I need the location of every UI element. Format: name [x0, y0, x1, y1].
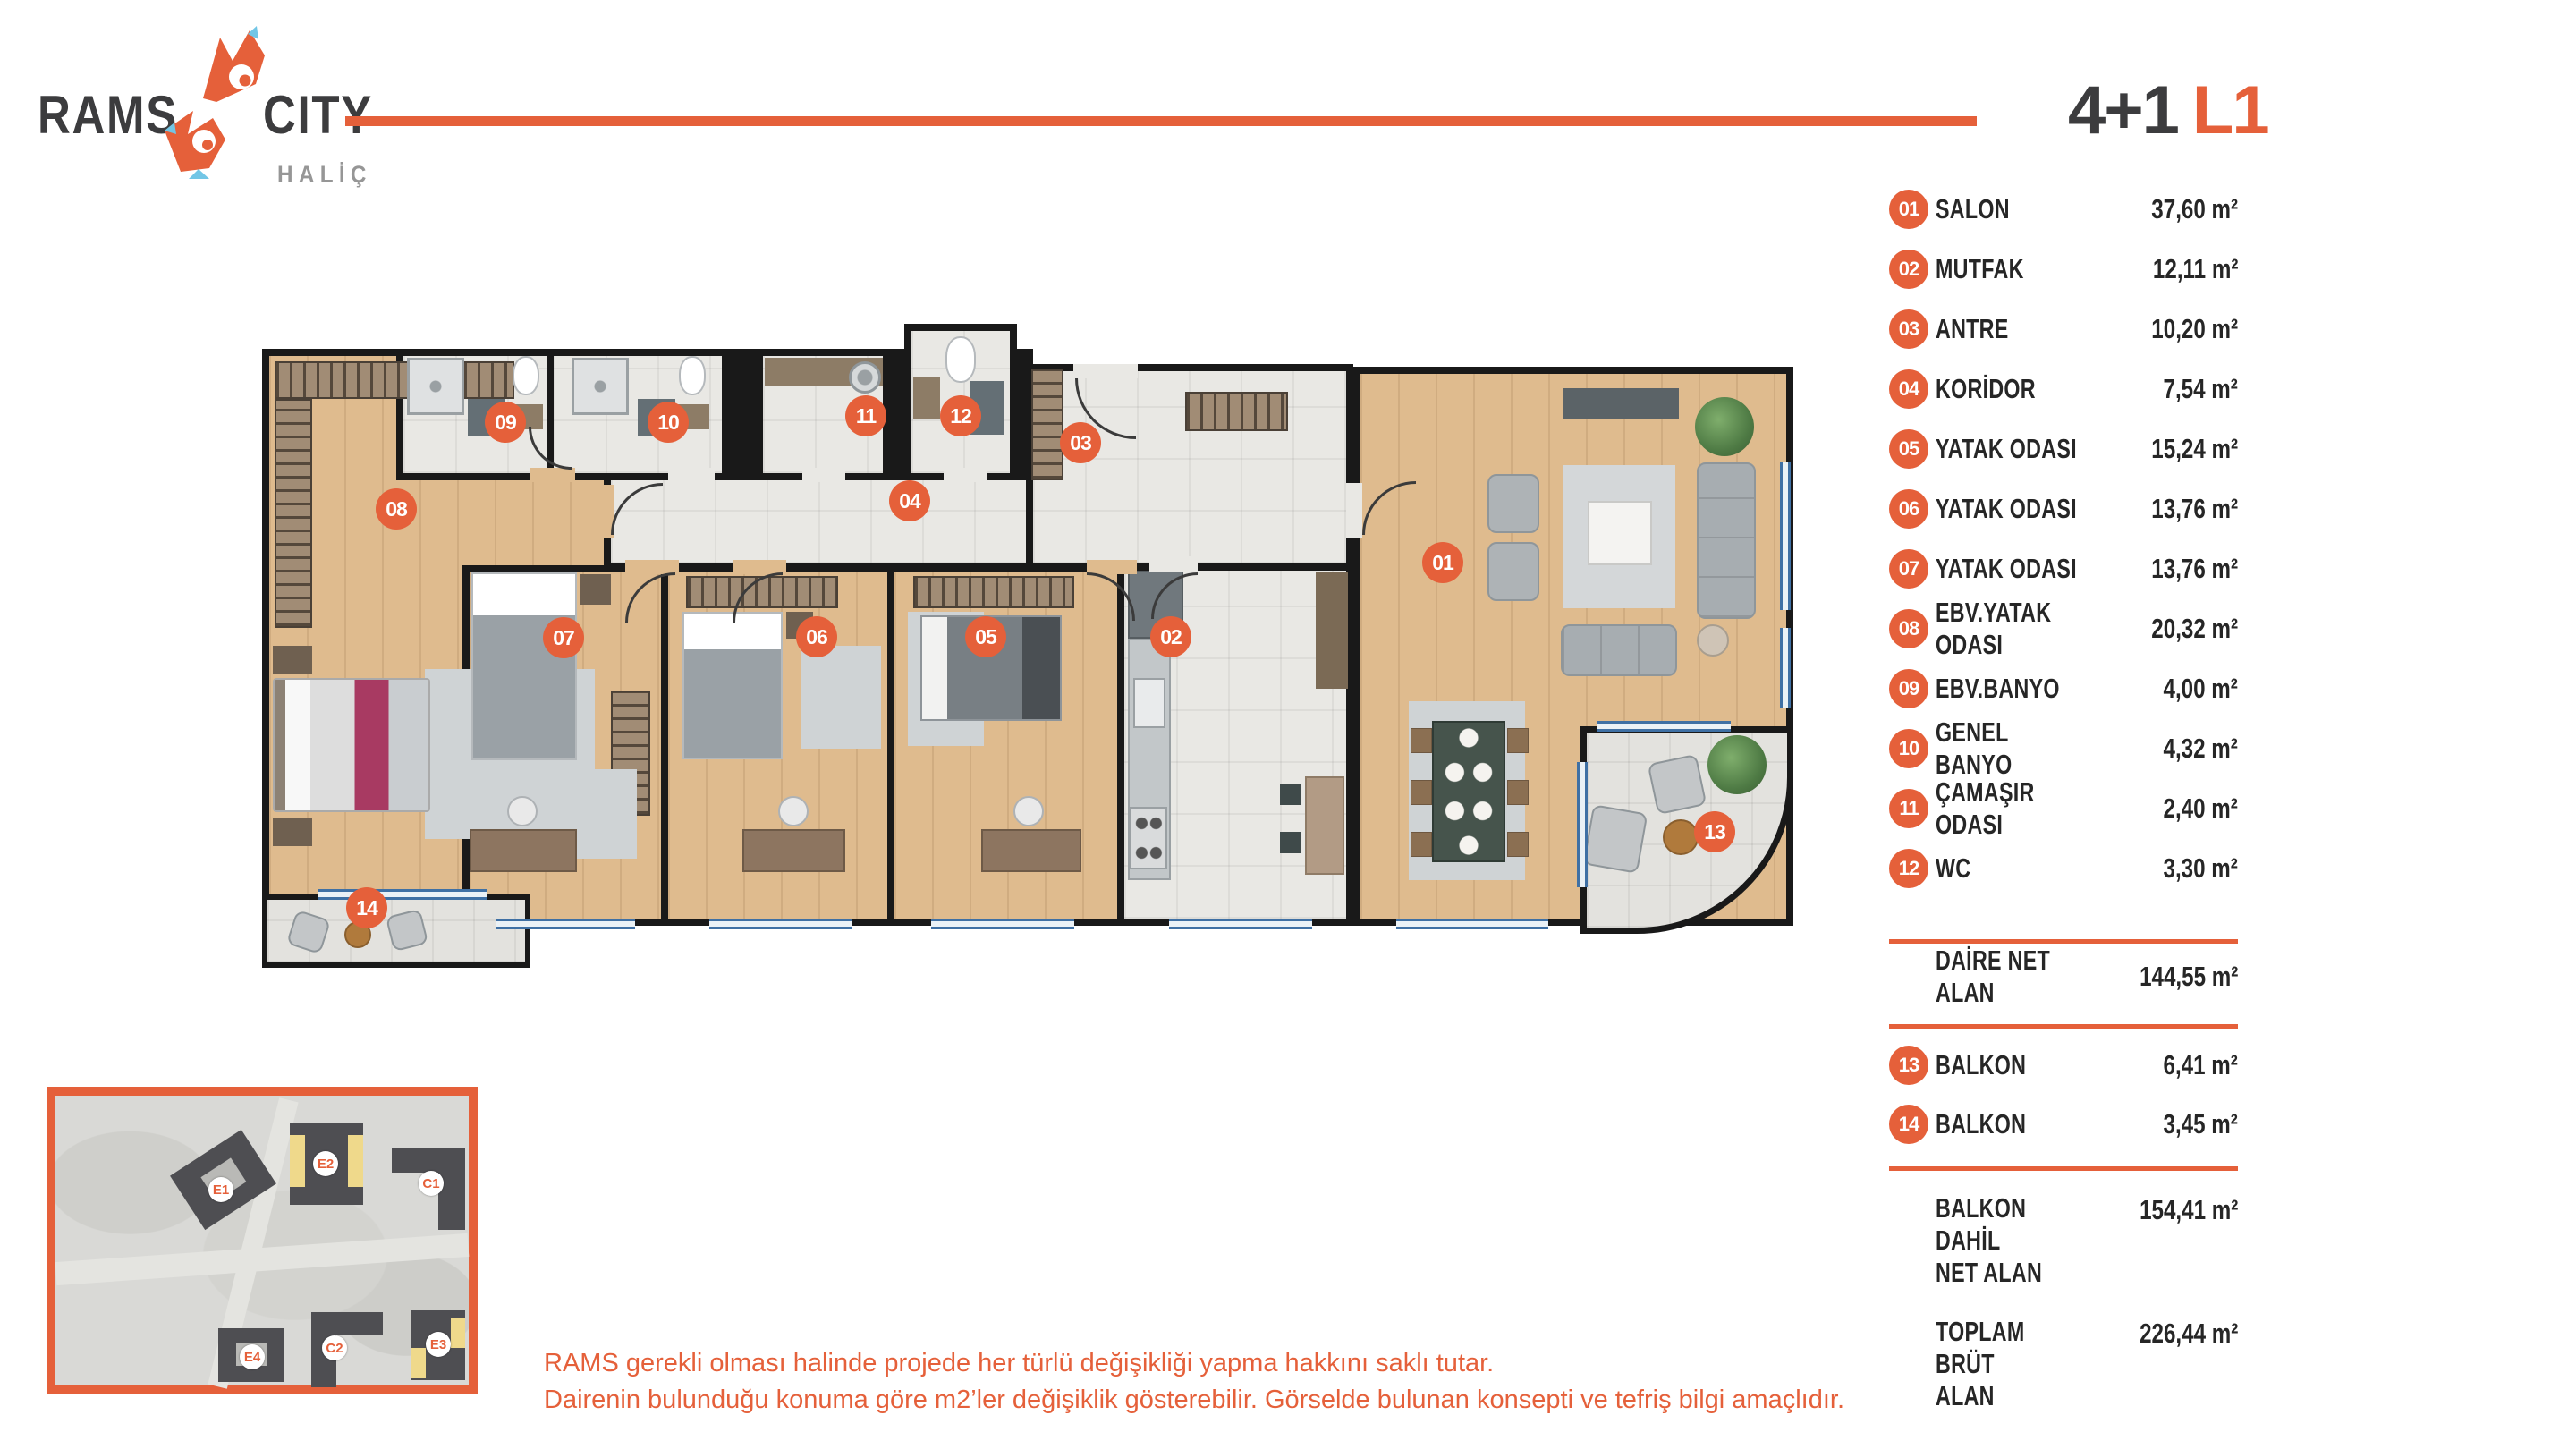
closet-icon [1031, 369, 1063, 480]
tv-unit-icon [1563, 388, 1679, 419]
window [931, 919, 1074, 929]
plan-badge-05: 05 [965, 616, 1006, 657]
legend-room-label: GENEL BANYO [1936, 716, 2090, 781]
room-corridor [604, 473, 1042, 571]
legend-row: 12WC3,30 m² [1889, 838, 2238, 898]
legend-badge: 05 [1889, 429, 1928, 469]
legend-row: 02MUTFAK12,11 m² [1889, 239, 2238, 299]
window [1577, 762, 1588, 887]
header-divider-line [345, 116, 1977, 126]
bed-icon [682, 612, 783, 759]
building-label-c2: C2 [322, 1335, 347, 1360]
plan-badge-13: 13 [1694, 811, 1735, 852]
legend-room-area: 3,30 m² [2164, 852, 2238, 885]
legend-row: 05YATAK ODASI15,24 m² [1889, 419, 2238, 479]
door-opening-entrance [1073, 364, 1138, 378]
legend-room-label: YATAK ODASI [1936, 433, 2077, 465]
legend-room-area: 37,60 m² [2151, 193, 2238, 225]
window [709, 919, 852, 929]
door-opening-kitchen [1149, 556, 1198, 572]
rug-icon [801, 646, 881, 749]
window [1396, 919, 1548, 929]
shower-icon [407, 358, 464, 415]
chair-icon [1280, 784, 1301, 805]
plan-badge-03: 03 [1060, 422, 1101, 463]
wall-fill [883, 349, 911, 480]
legend-net-label: DAİRE NET ALAN [1936, 945, 2068, 1009]
door-opening-bedroom-05 [1087, 560, 1137, 574]
legend-room-area: 13,76 m² [2151, 493, 2238, 525]
wardrobe-icon [275, 399, 312, 628]
coat-closet-icon [1185, 392, 1288, 431]
stove-icon [1130, 807, 1167, 869]
chair-icon [1507, 780, 1529, 805]
legend-row: 13BALKON6,41 m² [1889, 1036, 2238, 1095]
legend-row: 10GENEL BANYO4,32 m² [1889, 718, 2238, 778]
floor-plan: 01 02 03 04 05 06 07 08 09 10 11 12 13 1… [255, 342, 1795, 970]
legend-badge: 01 [1889, 190, 1928, 229]
wardrobe-icon [275, 361, 514, 399]
legend-room-label: YATAK ODASI [1936, 493, 2077, 525]
legend-total-row: TOPLAM BRÜT ALAN 226,44 m² [1889, 1316, 2238, 1412]
dining-table-icon [1432, 721, 1505, 862]
window [496, 919, 635, 929]
plan-badge-10: 10 [648, 402, 689, 443]
brand-logo: RAMS CITY HALİÇ [38, 27, 395, 206]
building-label-c1: C1 [419, 1171, 444, 1196]
disclaimer: RAMS gerekli olması halinde projede her … [544, 1345, 1939, 1419]
brand-word-city: CITY [263, 84, 373, 146]
door-opening-ensuite [530, 468, 575, 482]
desk-icon [742, 829, 845, 872]
brand-word-rams: RAMS [38, 84, 178, 146]
sofa-icon [1697, 462, 1756, 619]
nightstand-icon [273, 646, 312, 674]
site-plan-thumbnail: E1 E2 C1 E4 C2 E3 [47, 1087, 478, 1394]
chair-icon [1411, 780, 1432, 805]
door-opening-wc [944, 468, 987, 482]
legend-badge: 08 [1889, 609, 1928, 648]
brand-subtitle: HALİÇ [277, 161, 372, 189]
legend-total-label: TOPLAM BRÜT ALAN [1936, 1316, 2068, 1412]
legend-room-label: ÇAMAŞIR ODASI [1936, 776, 2090, 841]
washer-icon [849, 361, 881, 394]
table-icon [1305, 776, 1344, 875]
building-label-e2: E2 [313, 1151, 338, 1176]
legend-badge: 07 [1889, 549, 1928, 589]
legend-row: 14BALKON3,45 m² [1889, 1095, 2238, 1154]
legend-badge: 12 [1889, 849, 1928, 888]
desk-icon [981, 829, 1081, 872]
legend-room-label: YATAK ODASI [1936, 553, 2077, 585]
plan-badge-14: 14 [346, 887, 387, 928]
plant-icon [1707, 735, 1767, 794]
door-opening-living [1346, 483, 1362, 538]
highlight-wing [348, 1135, 363, 1187]
building-label-e1: E1 [208, 1177, 233, 1202]
legend-room-label: WC [1936, 852, 1970, 885]
plan-badge-06: 06 [796, 616, 837, 657]
legend-room-area: 4,32 m² [2164, 733, 2238, 765]
plan-badge-04: 04 [889, 480, 930, 521]
legend-total-label: BALKON DAHİL NET ALAN [1936, 1192, 2068, 1289]
armchair-icon [1583, 804, 1648, 874]
legend-room-area: 6,41 m² [2164, 1049, 2238, 1081]
armchair-icon [1648, 754, 1707, 815]
toilet-icon [945, 336, 976, 383]
chair-icon [1507, 728, 1529, 753]
armchair-icon [1487, 474, 1539, 533]
armchair-icon [1487, 542, 1539, 601]
legend-badge: 14 [1889, 1105, 1928, 1144]
legend-divider [1889, 1024, 2238, 1029]
building-label-e3: E3 [426, 1332, 451, 1357]
plan-badge-08: 08 [376, 488, 417, 530]
window [318, 889, 487, 900]
legend-total-row: BALKON DAHİL NET ALAN 154,41 m² [1889, 1192, 2238, 1289]
desk-icon [470, 829, 577, 872]
legend-total-area: 154,41 m² [2140, 1194, 2238, 1226]
chair-icon [1411, 728, 1432, 753]
highlight-wing [290, 1135, 305, 1187]
legend-room-label: EBV.YATAK ODASI [1936, 597, 2079, 661]
legend-room-area: 4,00 m² [2164, 673, 2238, 705]
nightstand-icon [580, 574, 611, 605]
legend-badge: 10 [1889, 729, 1928, 768]
legend-room-label: BALKON [1936, 1049, 2026, 1081]
ram-logo-icon [163, 25, 279, 182]
window [1597, 721, 1731, 732]
legend-room-area: 20,32 m² [2151, 613, 2238, 645]
plant-icon [1695, 397, 1754, 456]
legend-room-label: ANTRE [1936, 313, 2009, 345]
plan-badge-11: 11 [845, 395, 886, 436]
door-opening-laundry [802, 468, 845, 482]
legend-net-area: 144,55 m² [2140, 961, 2238, 993]
plan-type: 4+1 [2068, 72, 2178, 148]
window [1169, 919, 1312, 929]
legend-badge: 04 [1889, 369, 1928, 409]
plan-variant: L1 [2192, 72, 2268, 148]
door-opening-bath [668, 468, 715, 482]
plan-badge-12: 12 [940, 395, 981, 436]
window [1780, 462, 1791, 610]
chair-icon [1280, 832, 1301, 853]
legend-badge: 02 [1889, 250, 1928, 289]
table-icon [1663, 819, 1699, 855]
chair-icon [507, 796, 538, 826]
legend-badge: 09 [1889, 669, 1928, 708]
legend-row: 01SALON37,60 m² [1889, 179, 2238, 239]
plan-badge-01: 01 [1422, 542, 1463, 583]
toilet-icon [513, 356, 539, 395]
chair-icon [1507, 832, 1529, 857]
highlight-wing [411, 1348, 426, 1378]
window [1780, 628, 1791, 708]
legend-total-area: 226,44 m² [2140, 1318, 2238, 1350]
plan-badge-02: 02 [1150, 616, 1191, 657]
disclaimer-line-2: Dairenin bulunduğu konuma göre m2’ler de… [544, 1382, 1939, 1419]
legend-row: 09EBV.BANYO4,00 m² [1889, 658, 2238, 718]
toilet-icon [679, 356, 706, 395]
legend-badge: 13 [1889, 1046, 1928, 1085]
legend-row: 03ANTRE10,20 m² [1889, 299, 2238, 359]
chair-icon [1013, 796, 1044, 826]
plan-badge-07: 07 [543, 617, 584, 658]
legend-room-label: BALKON [1936, 1108, 2026, 1140]
legend-room-area: 15,24 m² [2151, 433, 2238, 465]
vanity-icon [913, 377, 940, 419]
plan-badge-09: 09 [485, 402, 526, 443]
bed-icon [273, 678, 430, 812]
legend-row: 04KORİDOR7,54 m² [1889, 359, 2238, 419]
legend-net-row: DAİRE NET ALAN 144,55 m² [1889, 944, 2238, 1010]
legend-room-area: 3,45 m² [2164, 1108, 2238, 1140]
legend-badge: 03 [1889, 309, 1928, 349]
coffee-table-icon [1588, 501, 1652, 565]
legend-row: 07YATAK ODASI13,76 m² [1889, 538, 2238, 598]
room-legend: 01SALON37,60 m² 02MUTFAK12,11 m² 03ANTRE… [1889, 179, 2238, 1412]
legend-row: 08EBV.YATAK ODASI20,32 m² [1889, 598, 2238, 658]
legend-badge: 06 [1889, 489, 1928, 529]
plan-title: 4+1L1 [2068, 72, 2268, 149]
sofa-icon [1561, 624, 1677, 676]
sink-icon [1133, 678, 1165, 728]
nightstand-icon [273, 818, 312, 846]
building-label-e4: E4 [240, 1344, 265, 1369]
legend-divider [1889, 1166, 2238, 1171]
legend-room-label: SALON [1936, 193, 2010, 225]
wardrobe-icon [913, 576, 1074, 608]
legend-room-area: 7,54 m² [2164, 373, 2238, 405]
legend-row: 06YATAK ODASI13,76 m² [1889, 479, 2238, 538]
disclaimer-line-1: RAMS gerekli olması halinde projede her … [544, 1345, 1939, 1382]
chair-icon [778, 796, 809, 826]
legend-room-area: 2,40 m² [2164, 792, 2238, 825]
legend-row: 11ÇAMAŞIR ODASI2,40 m² [1889, 778, 2238, 838]
legend-room-area: 13,76 m² [2151, 553, 2238, 585]
tall-cabinet-icon [1316, 572, 1348, 689]
legend-badge: 11 [1889, 789, 1928, 828]
legend-room-area: 12,11 m² [2153, 253, 2238, 285]
legend-room-area: 10,20 m² [2151, 313, 2238, 345]
legend-room-label: MUTFAK [1936, 253, 2024, 285]
highlight-wing [451, 1318, 465, 1348]
legend-room-label: KORİDOR [1936, 373, 2036, 405]
building-c2 [311, 1312, 383, 1335]
shower-icon [572, 358, 629, 415]
bed-icon [471, 572, 577, 760]
wall-fill [722, 349, 763, 480]
legend-room-label: EBV.BANYO [1936, 673, 2060, 705]
chair-icon [1411, 832, 1432, 857]
floor-lamp-icon [1697, 624, 1729, 657]
